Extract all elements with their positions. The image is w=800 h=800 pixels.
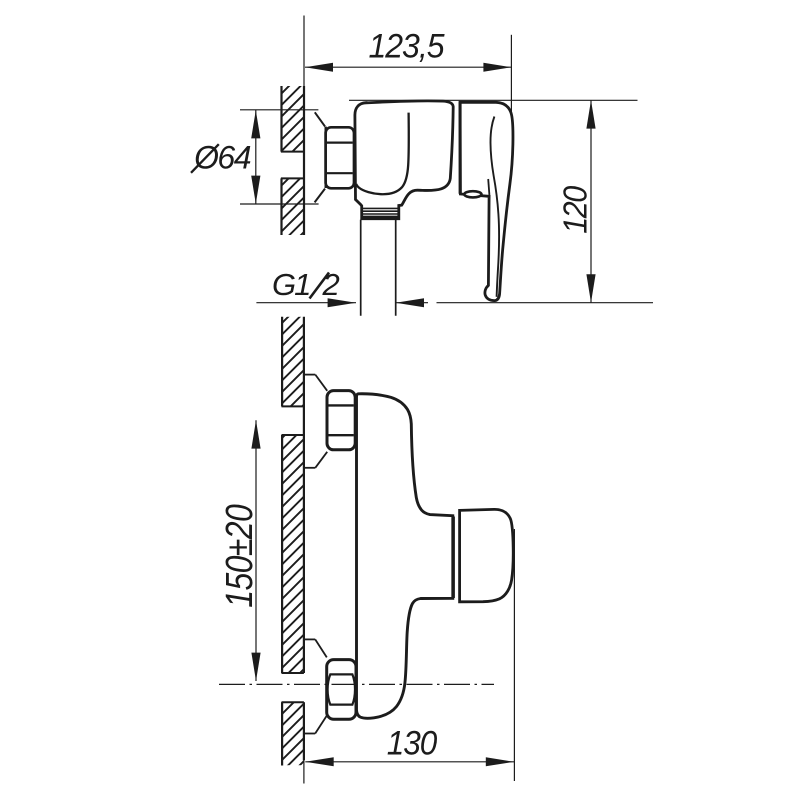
svg-text:130: 130 <box>387 724 438 763</box>
svg-text:123,5: 123,5 <box>368 28 445 66</box>
svg-text:O64: O64 <box>194 140 251 176</box>
svg-text:G1: G1 <box>272 267 309 302</box>
svg-text:2: 2 <box>322 267 340 302</box>
svg-text:150±20: 150±20 <box>218 504 260 608</box>
svg-text:120: 120 <box>556 186 594 234</box>
